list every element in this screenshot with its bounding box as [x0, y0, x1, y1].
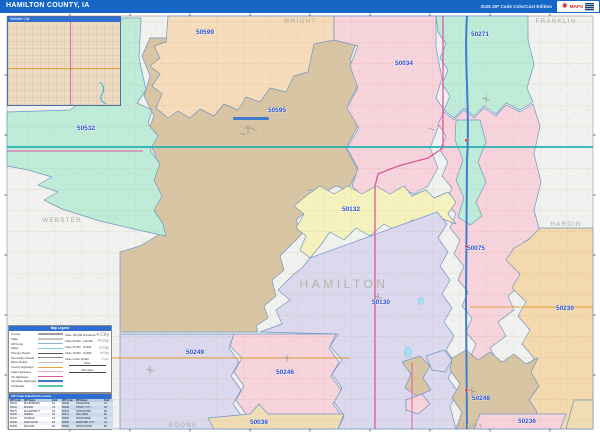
legend-city-label: Cities 10,000 - 24,999: [65, 352, 100, 355]
interstate-shield-marker: [465, 139, 468, 142]
zip-label-50271: 50271: [471, 31, 489, 38]
zip-label-50599: 50599: [196, 29, 214, 36]
legend-city-list: Cities 150,000 and Above✳CityCities 50,0…: [65, 332, 110, 362]
legend-item-label: US Highways: [11, 375, 38, 379]
zip-label-50595: 50595: [268, 107, 286, 114]
city-icon: ✳City: [100, 351, 109, 355]
legend-item-label: County Highways: [11, 365, 38, 369]
zip-label-50230: 50230: [556, 305, 574, 312]
legend-scale-line: [69, 365, 106, 366]
county-label-franklin: FRANKLIN: [536, 18, 577, 25]
legend-item-label: Water: [11, 346, 38, 350]
legend-item-label: Secondary Roads: [11, 356, 38, 360]
title-bar: HAMILTON COUNTY, IA 2026 ZIP Code ColorC…: [0, 0, 600, 13]
legend-item-swatch: [38, 348, 63, 350]
inset-river: [8, 22, 120, 106]
county-label-hamilton: HAMILTON: [300, 277, 389, 291]
legend-item-swatch: [38, 371, 63, 372]
zip-label-50034: 50034: [395, 60, 413, 67]
edition-label: 2026 ZIP Code ColorCast Edition: [481, 4, 552, 9]
zip-label-50130: 50130: [372, 299, 390, 306]
legend-item-label: County: [11, 332, 38, 336]
legend-symbol-list: CountyStateZIP CodeWaterPrimary RoadsSec…: [9, 331, 65, 388]
legend-item-swatch: [38, 376, 63, 377]
legend-item-label: Toll Roads: [11, 384, 38, 388]
legend-item-label: State Highways: [11, 370, 38, 374]
zip-label-50236: 50236: [518, 418, 536, 425]
zip-label-50248: 50248: [472, 395, 490, 402]
zip-label-50132: 50132: [342, 206, 360, 213]
city-icon: ✳City: [99, 345, 109, 350]
interstate-shield-marker: [465, 389, 468, 392]
legend-item-swatch: [38, 380, 63, 382]
zip-label-50249: 50249: [186, 349, 204, 356]
city-inset-map: Webster City: [7, 16, 121, 106]
legend-item-label: State: [11, 337, 38, 341]
county-label-webster: WEBSTER: [42, 217, 82, 224]
legend-item-swatch: [38, 362, 63, 363]
city-icon: ✳City: [101, 357, 109, 361]
legend-scale: Kilometers: [65, 369, 110, 376]
legend-item-swatch: [38, 367, 63, 368]
small-lake: [418, 298, 424, 305]
legend-item-swatch: [38, 343, 63, 344]
legend-item-label: ZIP Code: [11, 342, 38, 346]
zip-index-cell: 50236: [9, 425, 23, 429]
legend-city-label: Cities 150,000 and Above: [65, 334, 96, 337]
zip-index-row: 50236ROLANDE4: [9, 425, 61, 429]
legend-city-label: Cities 25,000 - 49,999: [65, 346, 99, 349]
legend-item-swatch: [38, 338, 63, 340]
logo-star-icon: ✺: [562, 3, 568, 10]
logo-text: MAPS: [570, 4, 583, 9]
legend-scale-bars: MilesKilometers: [65, 362, 110, 375]
county-label-wright: WRIGHT: [284, 18, 317, 25]
zip-index-cell: ROLAND: [23, 425, 51, 429]
legend-item: Toll Roads: [11, 384, 64, 389]
zip-label-50246: 50246: [276, 369, 294, 376]
zip-index-group: ZIP CodeZIP NameGrid50246STANHOPEC450248…: [61, 399, 113, 429]
legend-item-swatch: [38, 353, 63, 354]
legend-item-label: Interstate Highways: [11, 379, 38, 383]
zip-index-cell: B1: [103, 425, 113, 429]
brand-logo: ✺ MAPS: [557, 1, 599, 12]
little-wall-lake: [405, 347, 412, 357]
zip-label-50075: 50075: [467, 245, 485, 252]
zip-index-row: 50599WOOLSTOCKB1: [61, 425, 113, 429]
county-label-boone: BOONE: [169, 422, 198, 429]
legend-item-swatch: [38, 385, 63, 386]
legend-item-swatch: [38, 333, 63, 335]
zip-label-50036: 50036: [250, 419, 268, 426]
zip-index-cell: WOOLSTOCK: [75, 425, 103, 429]
map-title: HAMILTON COUNTY, IA: [6, 2, 90, 9]
county-label-story: STORY: [456, 423, 483, 430]
zip-index-table: ZIP Code Index/Grid Locator ZIP CodeZIP …: [8, 393, 112, 430]
legend-item-swatch: [38, 357, 63, 358]
business-route-segment: [233, 117, 269, 120]
zip-index-cell: E4: [51, 425, 61, 429]
zip-index-group: ZIP CodeZIP NameGrid50034BLAIRSBURGD1500…: [9, 399, 61, 429]
city-icon: ✳City: [96, 332, 109, 338]
zip-label-50532: 50532: [77, 125, 95, 132]
county-label-hardin: HARDIN: [550, 221, 581, 228]
city-icon: ✳City: [97, 338, 109, 344]
inset-title: Webster City: [10, 17, 29, 21]
zip-index-cell: 50599: [61, 425, 75, 429]
legend-city-label: Cities Under 10,000: [65, 358, 101, 361]
legend-item-label: Minor Roads: [11, 360, 38, 364]
legend-item-label: Primary Roads: [11, 351, 38, 355]
logo-fineprint: [585, 3, 594, 11]
map-legend: Map Legend CountyStateZIP CodeWaterPrima…: [8, 325, 112, 393]
legend-scale-line: [69, 372, 106, 373]
legend-city-label: Cities 50,000 - 149,999: [65, 340, 97, 343]
